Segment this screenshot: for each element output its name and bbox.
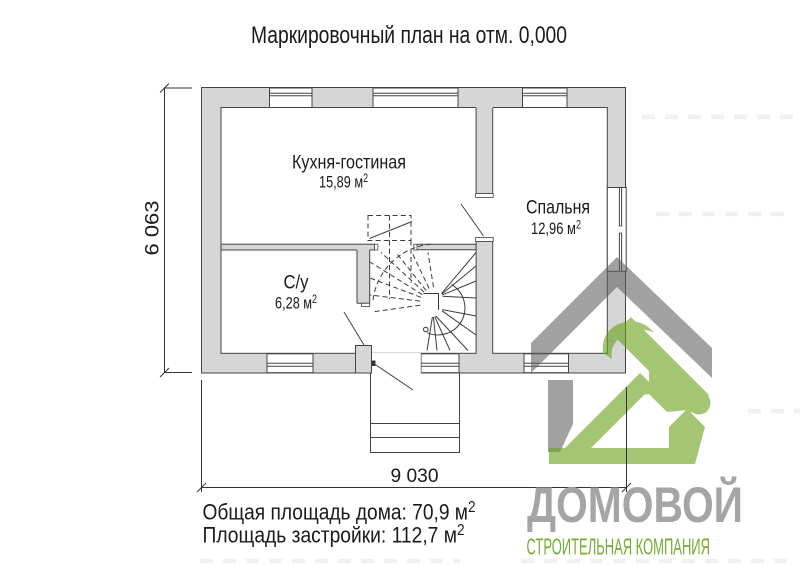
svg-text:СТРОИТЕЛЬНАЯ КОМПАНИЯ: СТРОИТЕЛЬНАЯ КОМПАНИЯ xyxy=(527,534,711,560)
svg-text:Маркировочный план на отм. 0,0: Маркировочный план на отм. 0,000 xyxy=(251,22,567,49)
svg-text:15,89 м2: 15,89 м2 xyxy=(319,173,368,192)
svg-text:9 030: 9 030 xyxy=(391,465,439,487)
svg-text:Общая площадь дома: 70,9 м2: Общая площадь дома: 70,9 м2 xyxy=(203,499,476,525)
svg-text:6 063: 6 063 xyxy=(142,201,164,256)
svg-text:ДОМОВОЙ: ДОМОВОЙ xyxy=(527,476,743,533)
svg-text:С/у: С/у xyxy=(284,272,309,294)
svg-text:Площадь застройки: 112,7 м2: Площадь застройки: 112,7 м2 xyxy=(203,522,465,548)
svg-text:6,28 м2: 6,28 м2 xyxy=(275,294,317,313)
svg-text:Кухня-гостиная: Кухня-гостиная xyxy=(292,152,406,174)
svg-text:12,96 м2: 12,96 м2 xyxy=(531,220,581,239)
svg-text:Спальня: Спальня xyxy=(526,197,590,219)
